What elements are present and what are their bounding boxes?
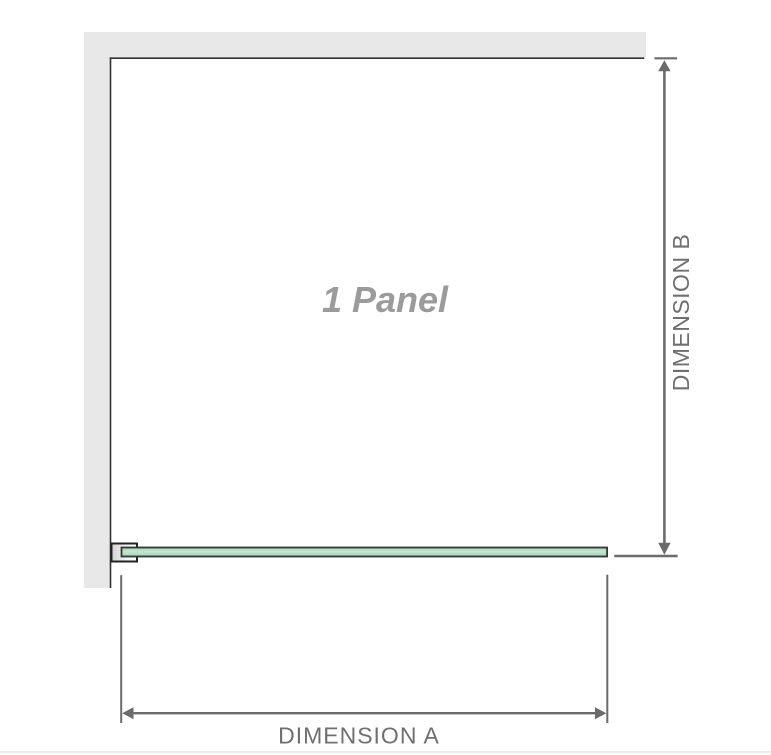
svg-text:DIMENSION A: DIMENSION A bbox=[278, 723, 440, 749]
svg-text:1 Panel: 1 Panel bbox=[322, 279, 449, 320]
svg-text:DIMENSION B: DIMENSION B bbox=[668, 234, 694, 392]
